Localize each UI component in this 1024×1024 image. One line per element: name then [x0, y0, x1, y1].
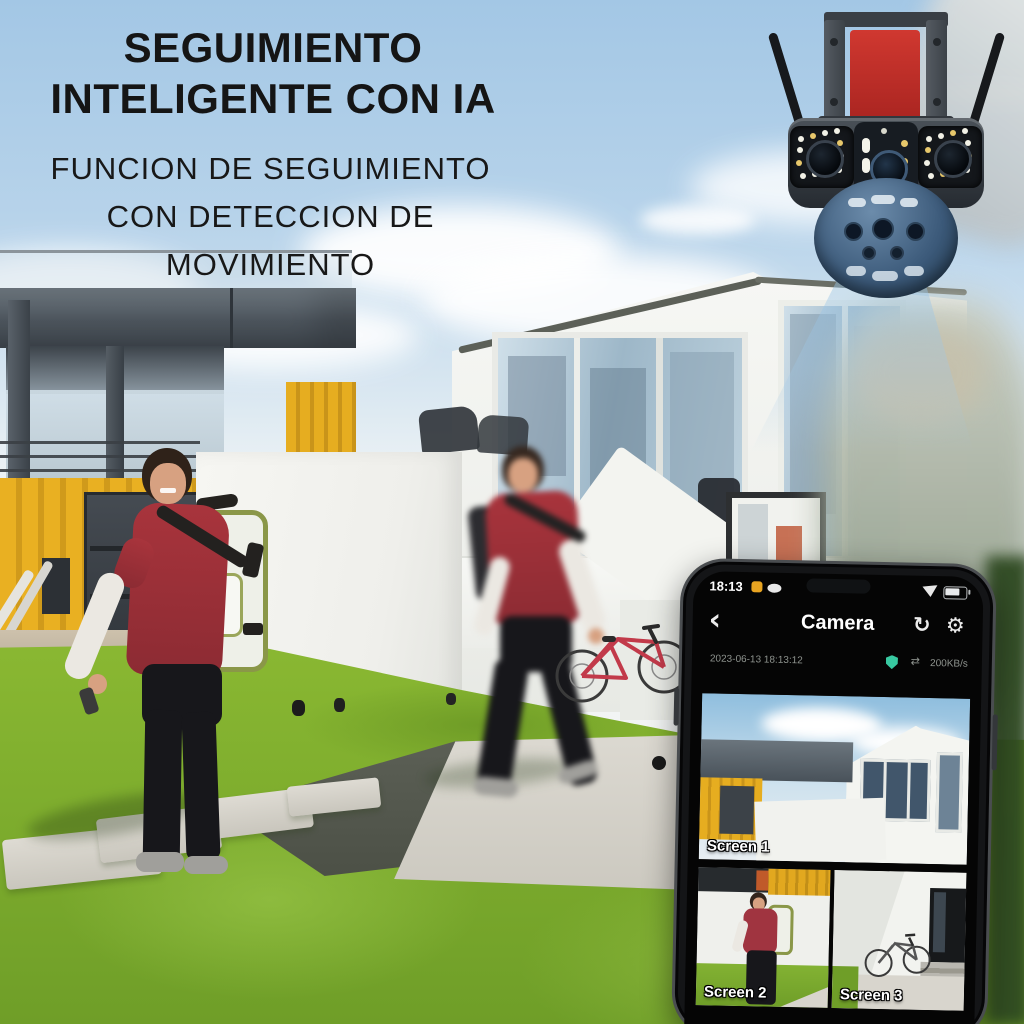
- screen-2-video[interactable]: Screen 2: [696, 867, 831, 1008]
- phone-side-button[interactable]: [674, 688, 680, 726]
- gear-icon[interactable]: ⚙: [946, 613, 965, 637]
- stream-info-row: 2023-06-13 18:13:12 ⇄ 200KB/s: [692, 647, 982, 677]
- headline-line-1: SEGUIMIENTO: [18, 22, 528, 73]
- security-camera: [740, 0, 1024, 310]
- notification-app-icon: [751, 581, 762, 592]
- screen-3-video[interactable]: Screen 3: [832, 870, 967, 1011]
- screen-1-label: Screen 1: [707, 837, 770, 855]
- garden-light: [292, 700, 305, 716]
- cloud: [640, 205, 755, 235]
- screen-2-label: Screen 2: [704, 983, 767, 1001]
- subtitle-line-3: MOVIMIENTO: [18, 241, 523, 289]
- canopy-roof: [0, 288, 356, 348]
- screen-1-video[interactable]: Screen 1: [699, 693, 970, 865]
- subtitle: FUNCION DE SEGUIMIENTO CON DETECCION DE …: [18, 145, 523, 289]
- eye-icon: [767, 584, 781, 593]
- screen-3-label: Screen 3: [840, 986, 903, 1004]
- phone-screen: 18:13 ‹ Camera ↻ ⚙: [684, 571, 984, 1024]
- canopy-seam: [230, 288, 233, 348]
- camera-lens-pod-right: [918, 126, 982, 188]
- battery-icon: [943, 586, 967, 599]
- app-title: Camera: [692, 609, 982, 638]
- garden-light: [334, 698, 345, 712]
- network-speed: 200KB/s: [930, 658, 968, 670]
- camera-notch: [806, 578, 870, 593]
- transfer-icon: ⇄: [911, 655, 920, 668]
- advertisement-canvas: SEGUIMIENTO INTELIGENTE CON IA FUNCION D…: [0, 0, 1024, 1024]
- phone-status-bar: 18:13: [693, 576, 983, 604]
- subtitle-line-2: CON DETECCION DE: [18, 193, 523, 241]
- wifi-icon: [922, 585, 937, 597]
- refresh-icon[interactable]: ↻: [913, 613, 931, 637]
- shield-icon: [886, 655, 898, 669]
- camera-lens-pod-left: [790, 126, 854, 188]
- subtitle-line-1: FUNCION DE SEGUIMIENTO: [18, 145, 523, 193]
- camera-dome: [814, 178, 958, 298]
- headline-line-2: INTELIGENTE CON IA: [18, 73, 528, 124]
- yellow-container-mid: [286, 382, 356, 456]
- stream-timestamp: 2023-06-13 18:13:12: [710, 653, 803, 666]
- smartphone: 18:13 ‹ Camera ↻ ⚙: [671, 558, 997, 1024]
- camera-mount-red-block: [850, 30, 920, 124]
- person-standing: [86, 448, 286, 884]
- headline: SEGUIMIENTO INTELIGENTE CON IA: [18, 22, 528, 124]
- phone-app-bar: ‹ Camera ↻ ⚙: [692, 601, 983, 651]
- garden-light: [652, 756, 666, 770]
- status-time: 18:13: [709, 578, 743, 594]
